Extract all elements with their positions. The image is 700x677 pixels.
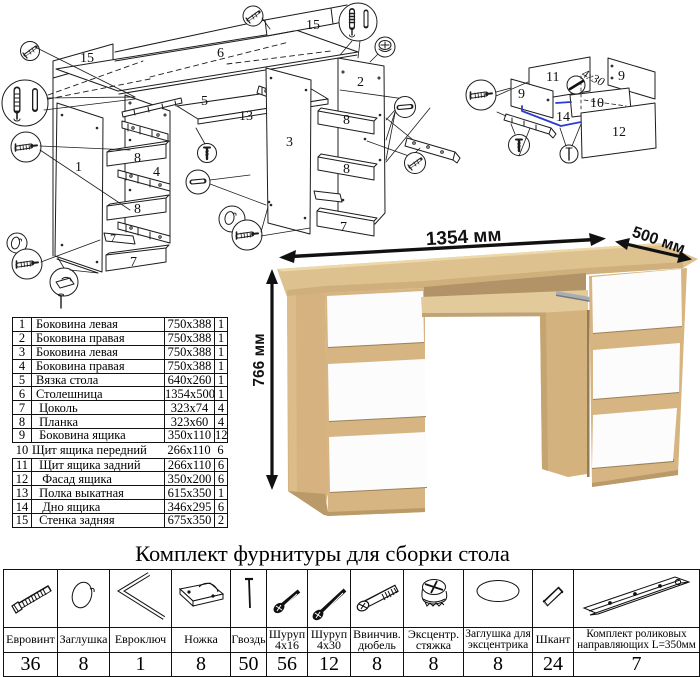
svg-text:9: 9 — [618, 69, 625, 84]
svg-text:7: 7 — [130, 255, 137, 270]
svg-text:8: 8 — [343, 162, 350, 177]
svg-text:2: 2 — [357, 75, 364, 90]
svg-text:8: 8 — [134, 202, 141, 217]
svg-text:7: 7 — [340, 220, 347, 235]
svg-text:766 мм: 766 мм — [251, 333, 268, 386]
svg-text:12: 12 — [612, 125, 626, 140]
svg-text:3: 3 — [286, 135, 293, 150]
svg-text:4: 4 — [153, 165, 160, 180]
svg-text:15: 15 — [306, 18, 320, 33]
svg-text:6: 6 — [217, 46, 224, 61]
svg-text:14: 14 — [556, 110, 570, 125]
svg-text:15: 15 — [80, 51, 94, 66]
svg-text:9: 9 — [518, 87, 525, 102]
svg-text:10: 10 — [590, 96, 604, 111]
svg-text:13: 13 — [239, 109, 253, 124]
svg-text:11: 11 — [546, 70, 559, 85]
svg-text:8: 8 — [343, 113, 350, 128]
svg-text:7: 7 — [110, 231, 116, 245]
svg-text:5: 5 — [201, 94, 208, 109]
svg-text:1: 1 — [75, 160, 82, 175]
svg-text:8: 8 — [134, 151, 141, 166]
